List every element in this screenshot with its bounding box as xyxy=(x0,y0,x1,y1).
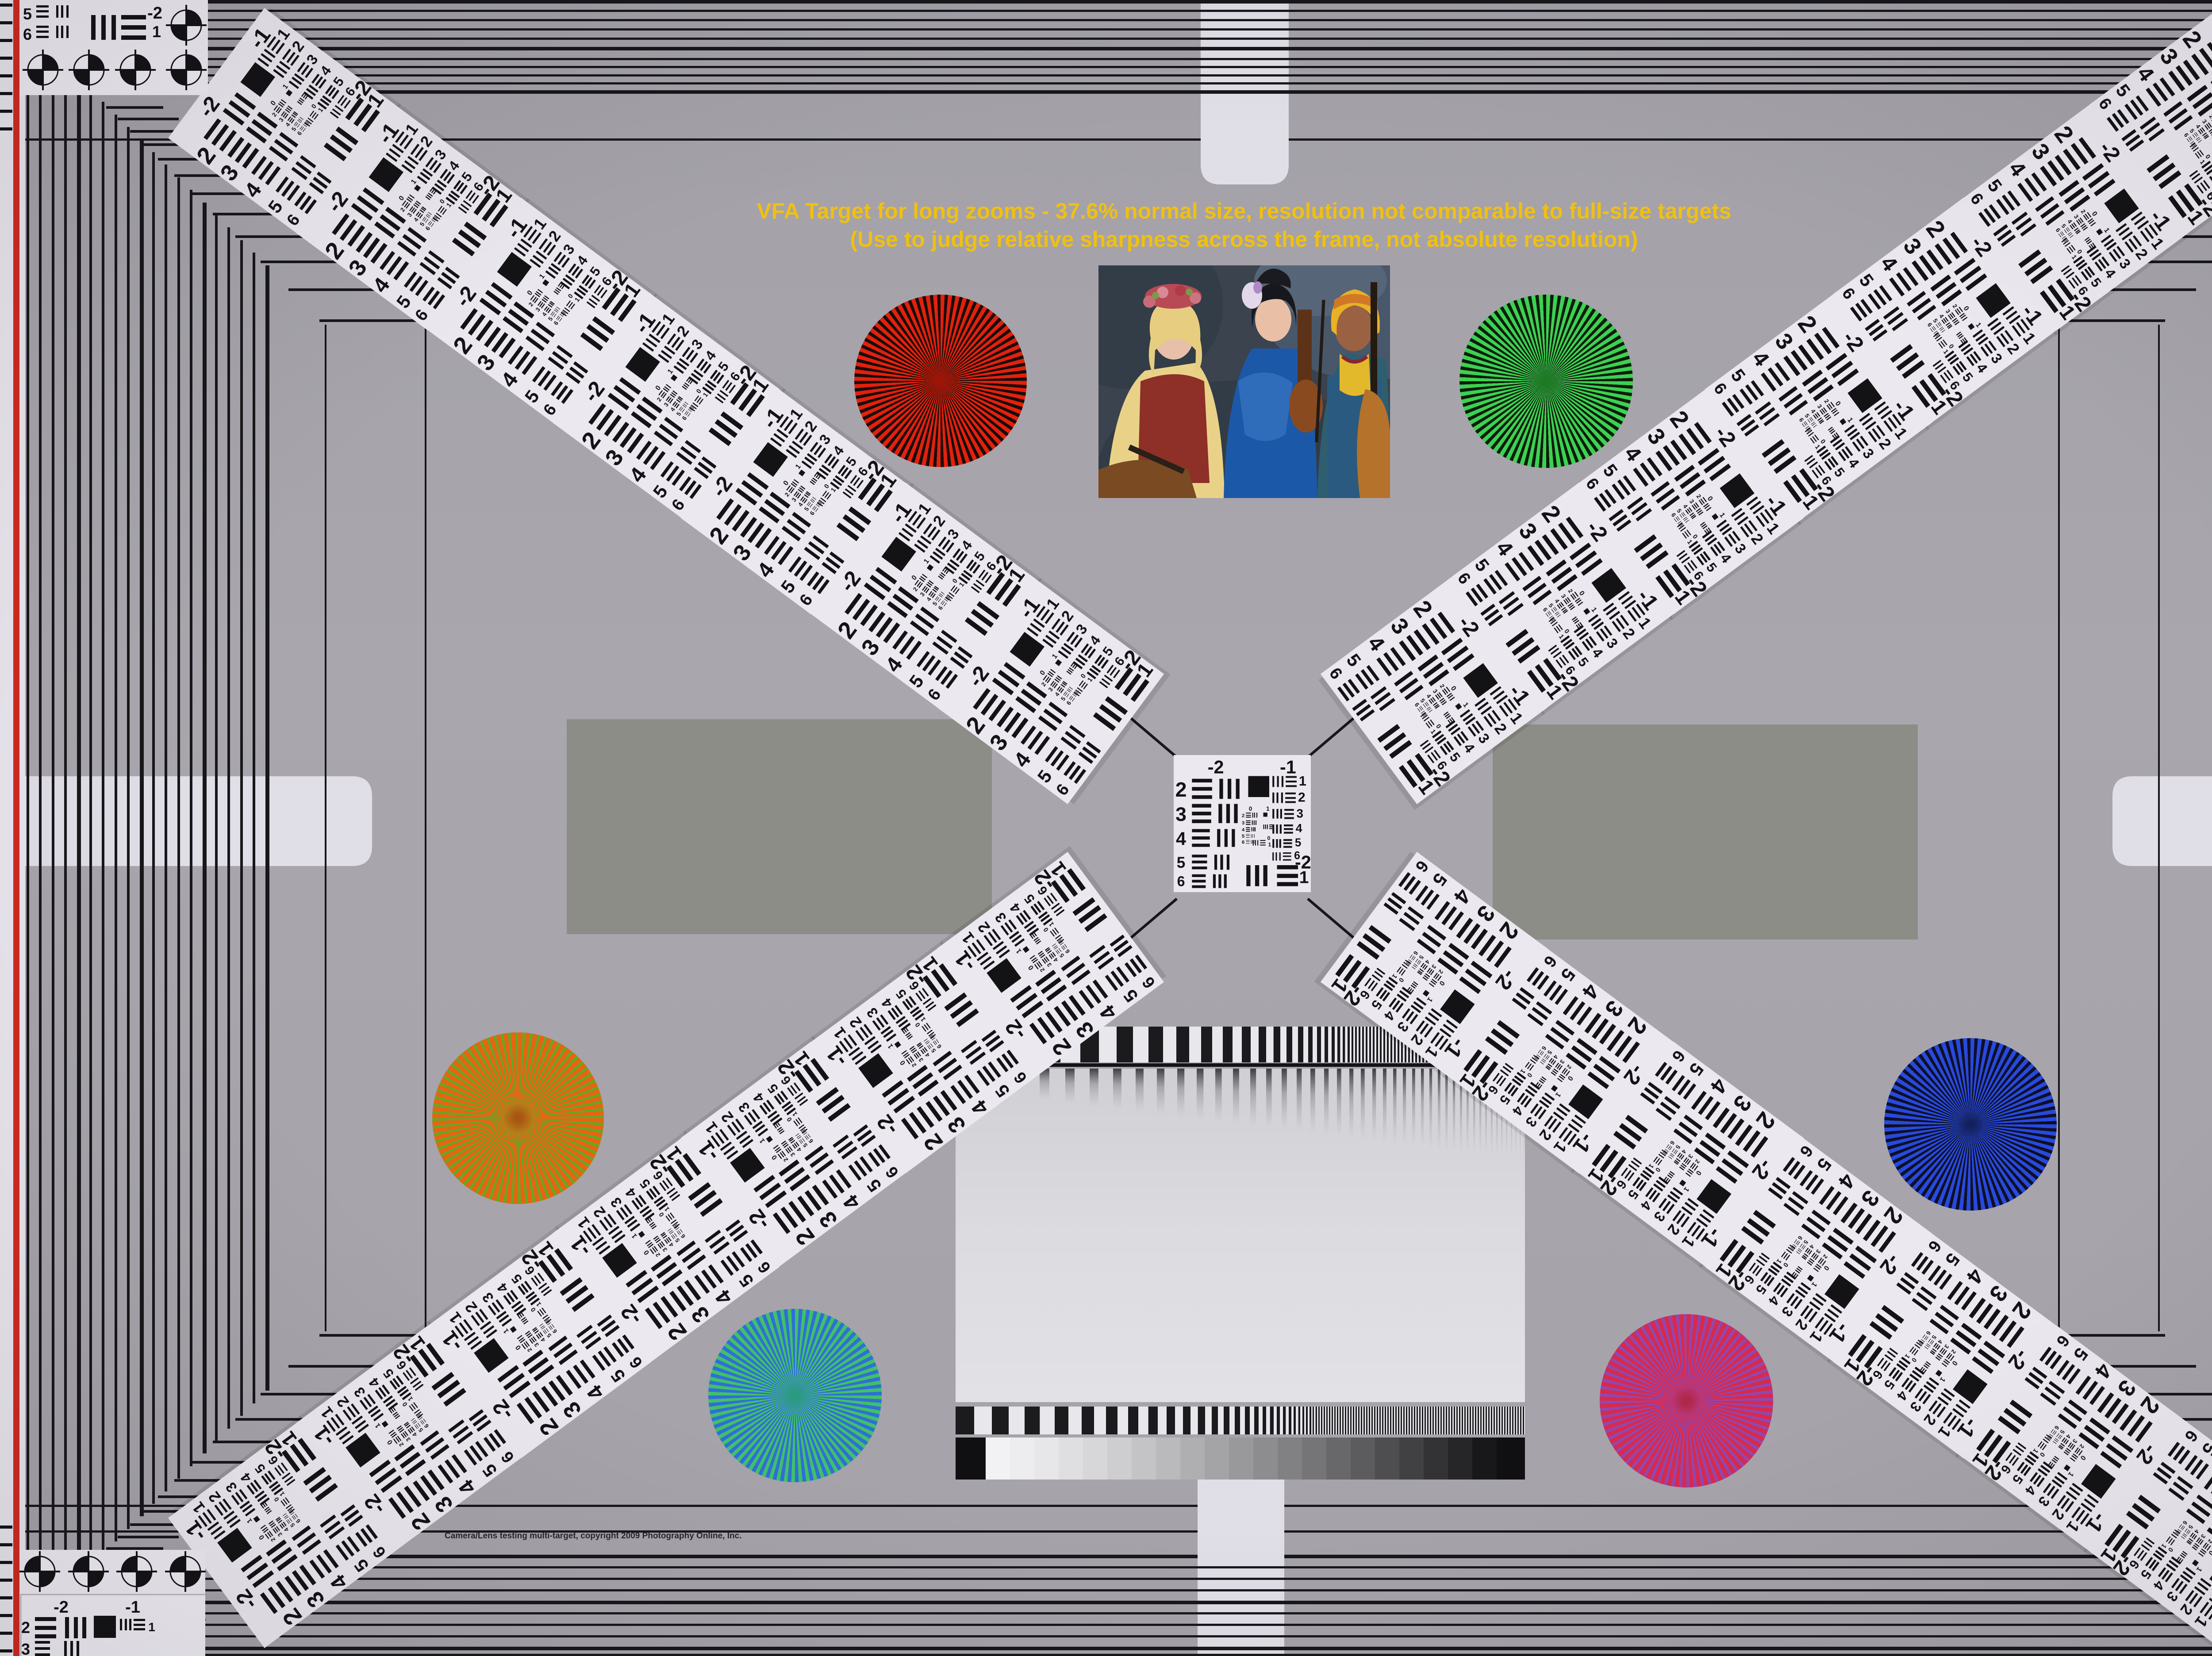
svg-text:-1: -1 xyxy=(125,1598,140,1617)
svg-text:Camera/Lens testing multi-targ: Camera/Lens testing multi-target, copyri… xyxy=(445,1531,741,1541)
svg-text:3: 3 xyxy=(21,1640,30,1656)
svg-text:-2: -2 xyxy=(147,4,162,23)
svg-text:1: 1 xyxy=(148,1620,155,1634)
svg-text:(Use to judge relative sharpne: (Use to judge relative sharpness across … xyxy=(850,227,1638,252)
svg-text:1: 1 xyxy=(152,23,161,41)
svg-text:6: 6 xyxy=(23,25,32,43)
svg-text:2: 2 xyxy=(21,1618,30,1637)
svg-text:5: 5 xyxy=(23,5,32,23)
svg-text:-2: -2 xyxy=(54,1598,69,1617)
svg-text:VFA Target for long zooms - 37: VFA Target for long zooms - 37.6% normal… xyxy=(757,199,1731,223)
